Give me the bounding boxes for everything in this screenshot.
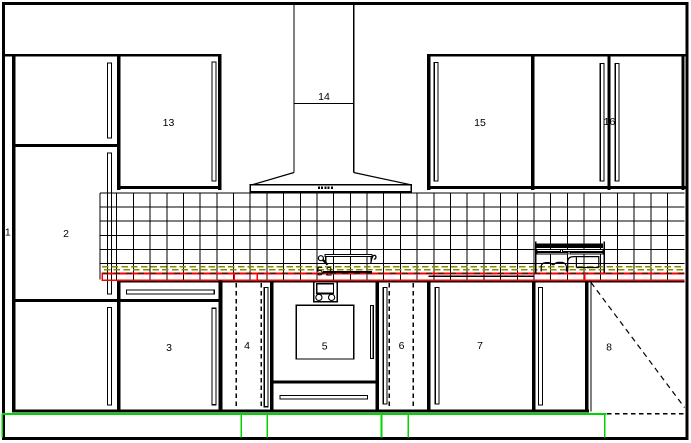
svg-text:8: 8 — [606, 342, 612, 354]
svg-text:2: 2 — [326, 265, 333, 279]
svg-text:1: 1 — [5, 226, 11, 238]
svg-text:15: 15 — [474, 117, 486, 129]
svg-text:16: 16 — [604, 116, 616, 128]
svg-text:3: 3 — [166, 342, 172, 354]
svg-text:13: 13 — [163, 117, 175, 129]
svg-text:6: 6 — [399, 340, 405, 352]
svg-text:2: 2 — [63, 228, 69, 240]
svg-text:14: 14 — [318, 91, 330, 103]
svg-text:5: 5 — [322, 341, 328, 353]
svg-text:5: 5 — [317, 265, 324, 279]
svg-text:7: 7 — [477, 340, 483, 352]
svg-text:4: 4 — [244, 340, 250, 352]
